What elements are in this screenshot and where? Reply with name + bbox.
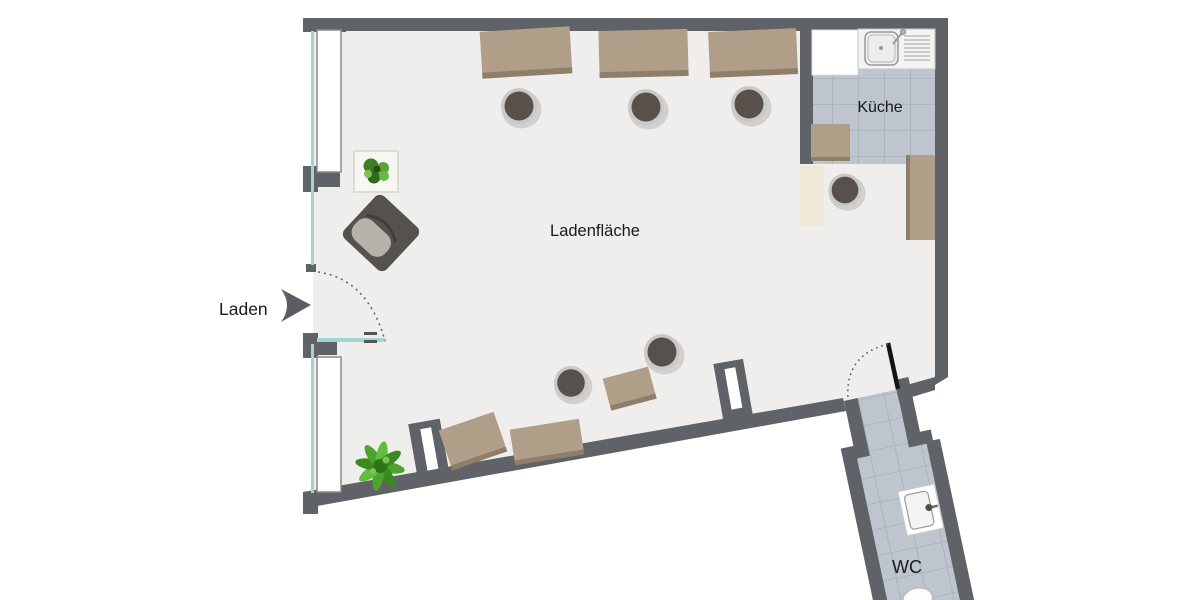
drainboard-lines: [904, 36, 930, 60]
bench: [800, 166, 824, 226]
kitchen-sink-icon: [858, 29, 935, 69]
entrance-label: Laden: [219, 299, 268, 319]
wall-top: [304, 18, 948, 31]
glass-line-lower: [311, 344, 314, 493]
kitchen-cabinet: [811, 124, 850, 161]
wall-right: [935, 31, 948, 385]
door-jamb: [303, 333, 318, 358]
window-2: [317, 357, 341, 492]
mullion-mid: [303, 166, 318, 192]
sideboard: [906, 155, 935, 240]
kitchen-label: Küche: [857, 99, 902, 116]
door-hinge-tick: [306, 264, 316, 272]
plant-pot-icon: [354, 151, 398, 192]
table-top-1: [480, 26, 573, 78]
floor-plan: Laden Ladenfläche Küche WC: [0, 0, 1200, 600]
table-top-2: [598, 29, 688, 78]
sideboard-edge: [906, 155, 910, 240]
corner-bottom-left: [303, 492, 318, 514]
door-end-mark-1: [364, 332, 377, 335]
fridge: [812, 30, 858, 75]
wc-label: WC: [892, 557, 922, 577]
main-room-label: Ladenfläche: [550, 222, 640, 240]
mullion-mid-arm: [317, 171, 340, 187]
door-end-mark-2: [364, 340, 377, 343]
table-top-3: [708, 28, 798, 78]
kitchen-cabinet-edge: [811, 157, 850, 161]
floor-plan-svg: Laden Ladenfläche Küche WC: [0, 0, 1200, 600]
arrow-right-icon: [281, 289, 311, 322]
window-1: [317, 30, 341, 172]
glass-line-upper: [311, 31, 314, 265]
